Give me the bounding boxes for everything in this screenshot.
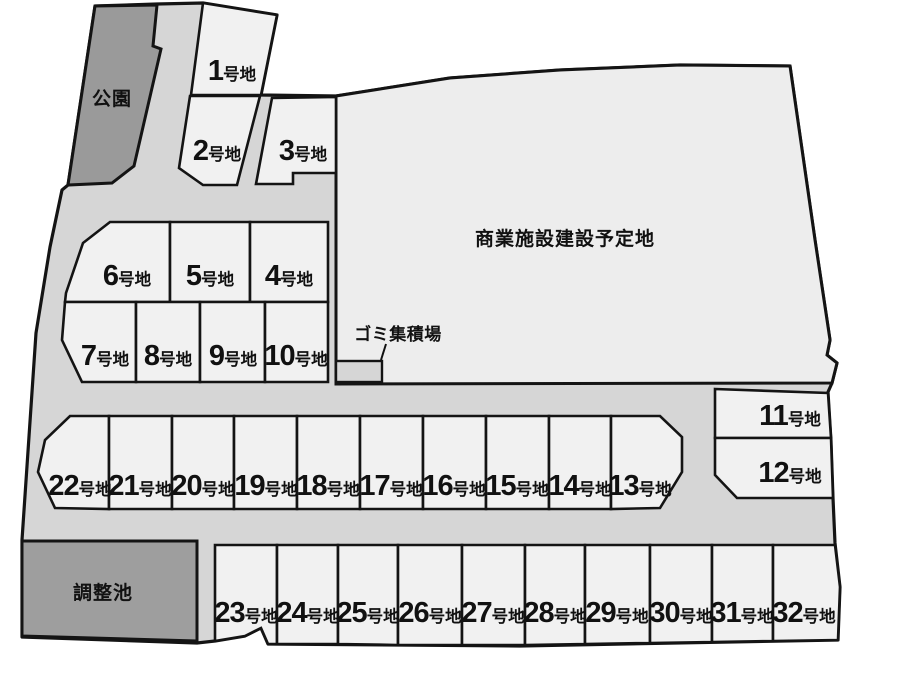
pond-label: 調整池 [73,581,133,604]
lot-23-area [215,545,277,644]
commercial-site-label: 商業施設建設予定地 [475,227,655,250]
lot-26-area [398,545,462,645]
lot-29-area [585,545,650,644]
lot-4-area [250,222,328,302]
lots-row-23-32 [215,545,840,645]
subdivision-map: 公園 商業施設建設予定地 ゴミ集積場 調整池 1号地 2号地 3号地 4号地 5… [0,0,900,673]
lot-5-area [170,222,250,302]
lot-25-area [338,545,398,645]
garbage-station [336,361,382,382]
lot-27-area [462,545,525,645]
lot-28-area [525,545,585,645]
plot-map-svg: 公園 商業施設建設予定地 ゴミ集積場 調整池 1号地 2号地 3号地 4号地 5… [0,0,900,673]
garbage-station-label: ゴミ集積場 [354,324,442,344]
park-label: 公園 [92,88,132,110]
lot-24-area [277,545,338,644]
